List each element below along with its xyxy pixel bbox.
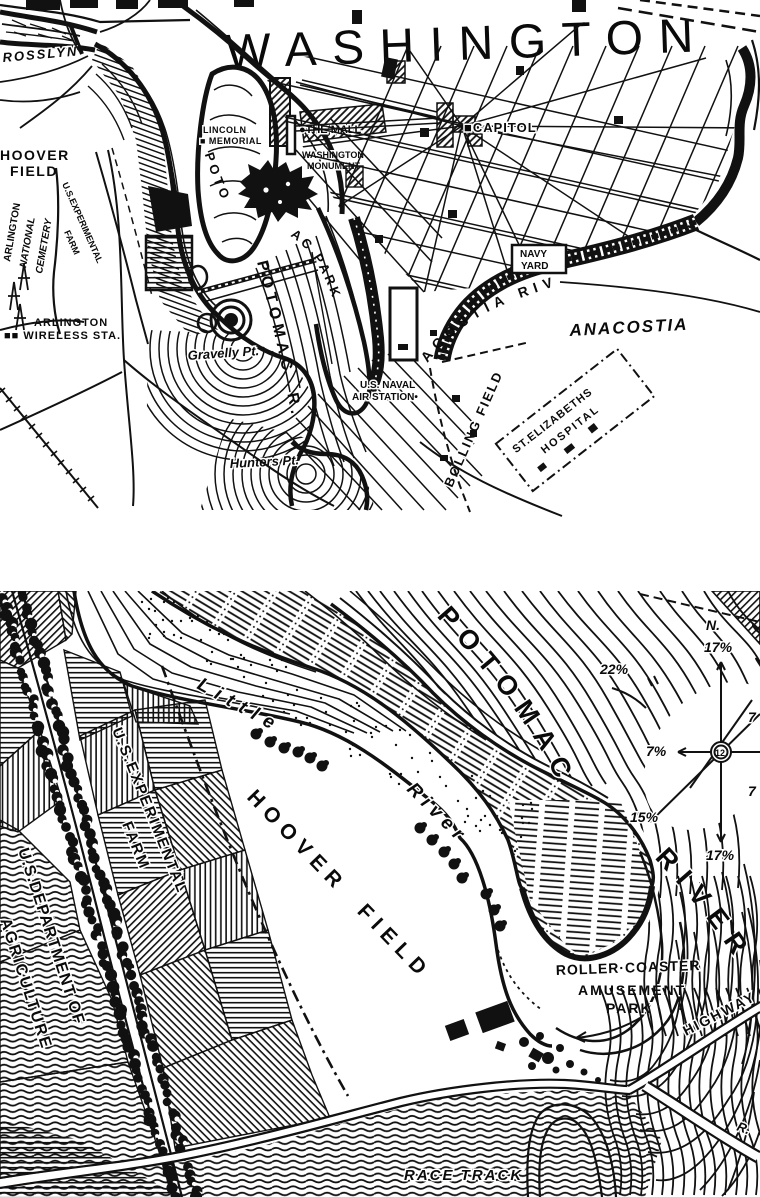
svg-text:LINCOLN: LINCOLN <box>203 125 247 135</box>
svg-text:7: 7 <box>748 783 757 799</box>
svg-text:■ MEMORIAL: ■ MEMORIAL <box>200 136 262 146</box>
svg-text:7%: 7% <box>646 743 667 759</box>
svg-text:15%: 15% <box>630 809 659 825</box>
svg-text:12: 12 <box>715 748 725 758</box>
svg-text:NAVY: NAVY <box>520 249 547 260</box>
svg-text:N.: N. <box>706 617 720 633</box>
svg-text:■CAPITOL: ■CAPITOL <box>464 120 537 135</box>
svg-text:U.S. NAVAL: U.S. NAVAL <box>360 380 415 391</box>
svg-text:7: 7 <box>748 709 757 725</box>
svg-text:ARLINGTON: ARLINGTON <box>34 317 108 329</box>
svg-text:22%: 22% <box>599 661 629 677</box>
svg-text:FIELD: FIELD <box>10 163 58 179</box>
svg-text:17%: 17% <box>706 847 735 863</box>
svg-text:AIR STATION•: AIR STATION• <box>352 392 418 403</box>
svg-text:RACE TRACK: RACE TRACK <box>404 1167 523 1184</box>
svg-text:■■ WIRELESS STA.: ■■ WIRELESS STA. <box>4 330 121 342</box>
svg-text:17%: 17% <box>704 639 733 655</box>
svg-text:HOOVER: HOOVER <box>0 147 70 163</box>
svg-text:YARD: YARD <box>521 261 548 272</box>
